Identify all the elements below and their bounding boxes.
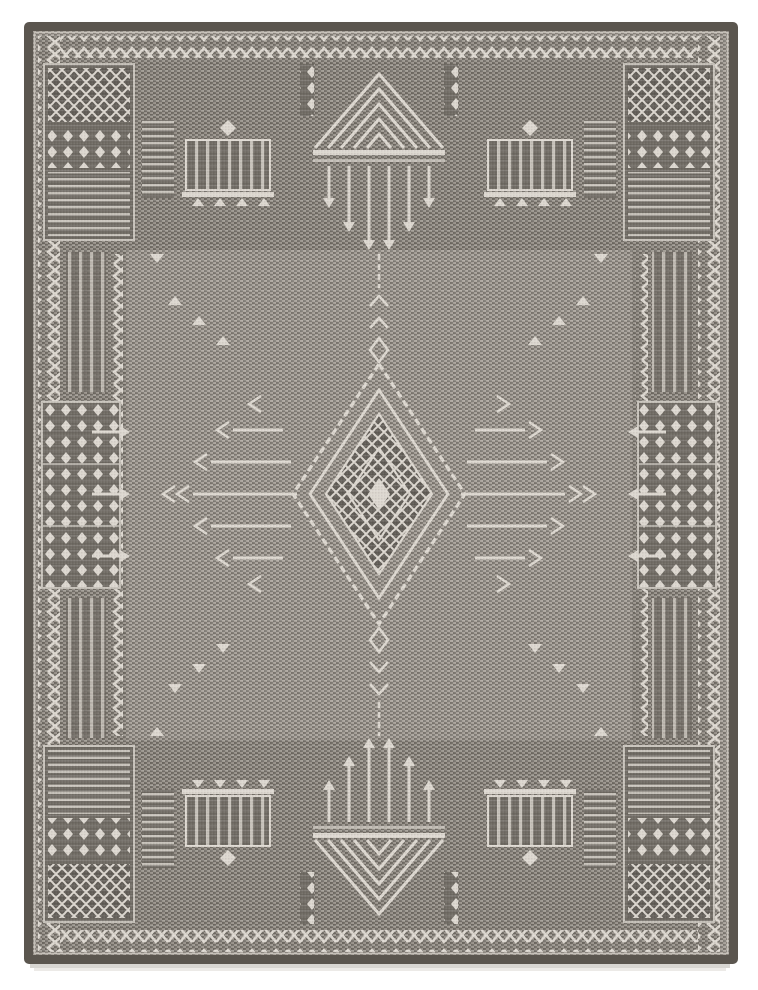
rug-illustration	[0, 0, 758, 990]
rug-product-photo	[0, 0, 758, 990]
rug	[24, 22, 738, 964]
weave-grain	[33, 31, 729, 955]
